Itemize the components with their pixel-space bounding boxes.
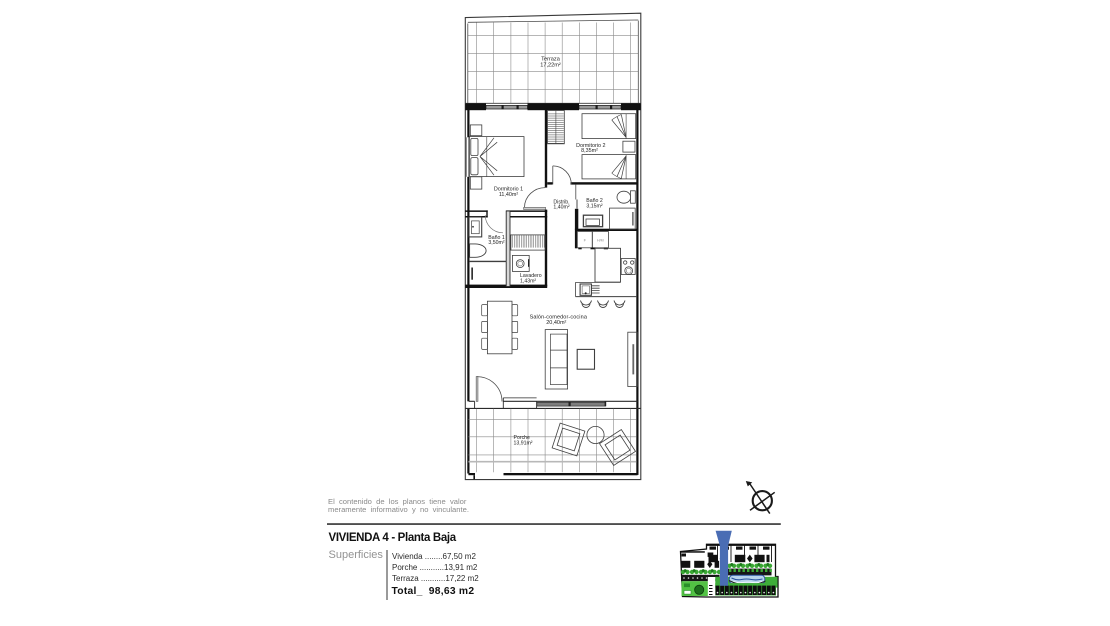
svg-text:3,15m²: 3,15m²: [586, 204, 602, 210]
svg-text:13,91m²: 13,91m²: [514, 440, 533, 446]
svg-text:8,35m²: 8,35m²: [581, 148, 598, 154]
svg-text:H/M: H/M: [597, 239, 604, 243]
svg-text:3,50m²: 3,50m²: [488, 240, 504, 246]
svg-text:17,22m²: 17,22m²: [540, 62, 561, 68]
svg-text:20,40m²: 20,40m²: [546, 320, 566, 326]
svg-text:1,43m²: 1,43m²: [520, 279, 536, 285]
svg-text:11,40m²: 11,40m²: [499, 192, 519, 198]
svg-text:1,40m²: 1,40m²: [553, 204, 569, 210]
